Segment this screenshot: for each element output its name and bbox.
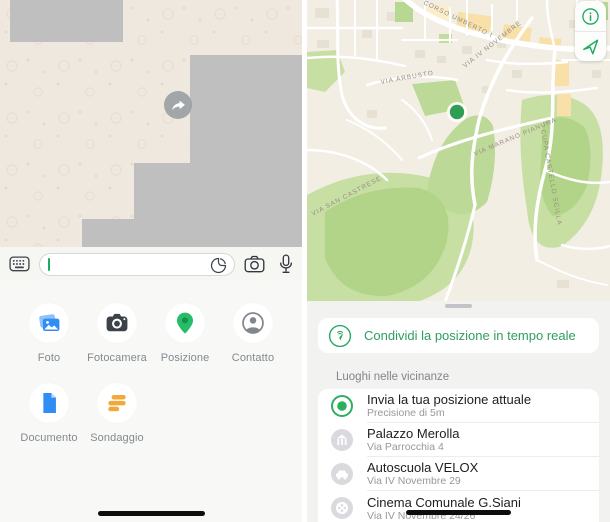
place-subtitle: Precisione di 5m	[367, 407, 599, 419]
redacted-message-block	[190, 55, 302, 163]
poll-icon	[104, 390, 130, 416]
recenter-button[interactable]	[575, 31, 606, 61]
map-controls	[575, 1, 606, 61]
redacted-message-block	[10, 0, 123, 42]
place-title: Cinema Comunale G.Siani	[367, 495, 599, 510]
whatsapp-location-screen: CORSO UMBERTO I VIA IV NOVEMBRE VIA ARBU…	[307, 0, 610, 522]
attachment-label: Documento	[17, 432, 81, 444]
redacted-message-block	[134, 163, 302, 219]
attachment-label: Sondaggio	[85, 432, 149, 444]
attachment-label: Posizione	[153, 352, 217, 364]
car-icon	[330, 462, 354, 486]
forward-arrow-icon	[170, 97, 186, 113]
chat-wallpaper	[0, 0, 302, 247]
home-indicator[interactable]	[98, 511, 205, 516]
attachment-label: Foto	[17, 352, 81, 364]
attachment-posizione[interactable]: Posizione	[153, 303, 217, 364]
place-subtitle: Via IV Novembre 29	[367, 475, 599, 487]
film-reel-icon	[330, 496, 354, 520]
attachment-contatto[interactable]: Contatto	[221, 303, 285, 364]
info-button[interactable]	[575, 1, 606, 31]
place-row-palazzo-merolla[interactable]: Palazzo Merolla Via Parrocchia 4	[318, 423, 599, 457]
share-live-location-button[interactable]: Condividi la posizione in tempo reale	[318, 318, 599, 353]
attachment-label: Fotocamera	[85, 352, 149, 364]
place-title: Palazzo Merolla	[367, 426, 599, 441]
whatsapp-chat-screen: Foto Fotocamera	[0, 0, 302, 522]
attachment-foto[interactable]: Foto	[17, 303, 81, 364]
share-live-location-label: Condividi la posizione in tempo reale	[364, 328, 576, 343]
attachment-sondaggio[interactable]: Sondaggio	[85, 383, 149, 444]
live-location-icon	[328, 324, 352, 348]
document-icon	[36, 390, 62, 416]
attachment-label: Contatto	[221, 352, 285, 364]
home-indicator[interactable]	[406, 510, 511, 515]
camera-icon[interactable]	[244, 255, 265, 273]
attachment-documento[interactable]: Documento	[17, 383, 81, 444]
message-composer-bar	[0, 247, 302, 281]
send-current-location-row[interactable]: Invia la tua posizione attuale Precision…	[318, 389, 599, 423]
microphone-icon[interactable]	[279, 254, 293, 274]
attachment-sheet: Foto Fotocamera	[0, 281, 302, 522]
navigation-arrow-icon	[581, 37, 600, 56]
camera-filled-icon	[104, 310, 130, 336]
info-icon	[581, 7, 600, 26]
screenshot-composite: Foto Fotocamera	[0, 0, 610, 522]
map[interactable]: CORSO UMBERTO I VIA IV NOVEMBRE VIA ARBU…	[307, 0, 610, 302]
building-icon	[330, 428, 354, 452]
place-title: Autoscuola VELOX	[367, 460, 599, 475]
forward-message-button[interactable]	[164, 91, 192, 119]
nearby-places-header: Luoghi nelle vicinanze	[336, 371, 449, 383]
place-row-cinema-siani[interactable]: Cinema Comunale G.Siani Via IV Novembre …	[318, 491, 599, 522]
contact-icon	[240, 310, 266, 336]
location-pin-icon	[172, 310, 198, 336]
location-bottom-sheet: Condividi la posizione in tempo reale Lu…	[307, 301, 610, 522]
sticker-icon[interactable]	[210, 257, 227, 274]
text-caret	[48, 258, 50, 271]
current-position-dot	[447, 102, 467, 122]
attachment-fotocamera[interactable]: Fotocamera	[85, 303, 149, 364]
sheet-drag-handle[interactable]	[445, 304, 472, 308]
photos-icon	[36, 310, 62, 336]
current-location-icon	[330, 394, 354, 418]
nearby-places-list: Invia la tua posizione attuale Precision…	[318, 389, 599, 522]
keyboard-icon[interactable]	[9, 256, 30, 272]
place-title: Invia la tua posizione attuale	[367, 392, 599, 407]
place-row-autoscuola-velox[interactable]: Autoscuola VELOX Via IV Novembre 29	[318, 457, 599, 491]
place-subtitle: Via Parrocchia 4	[367, 441, 599, 453]
redacted-message-block	[82, 219, 302, 247]
message-input[interactable]	[39, 253, 235, 276]
